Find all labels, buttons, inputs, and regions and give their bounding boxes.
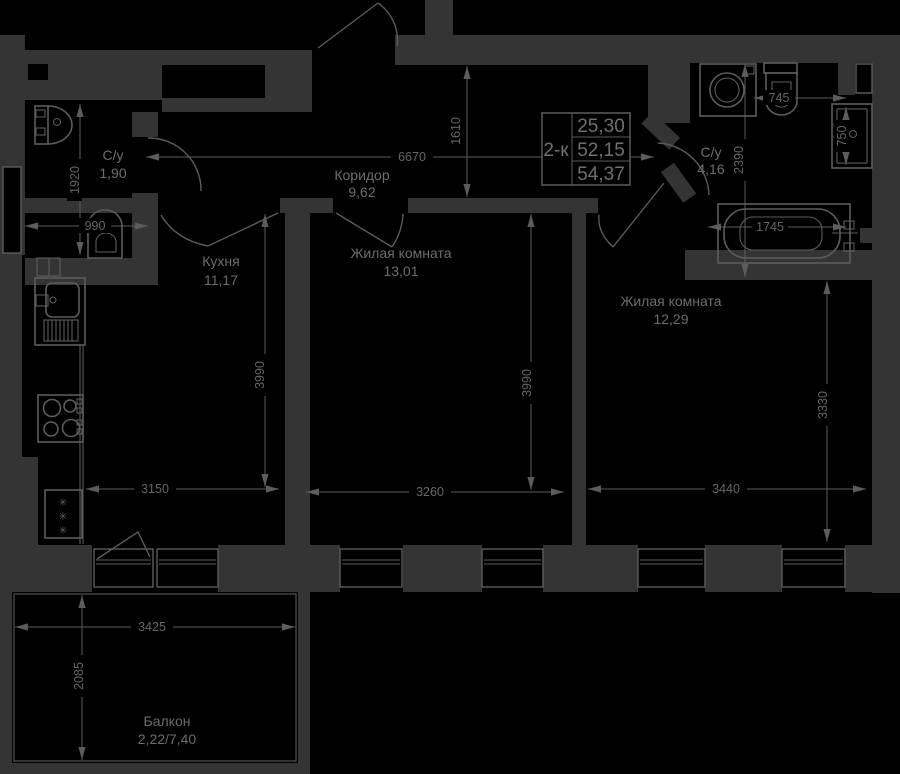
room-label-bath2: С/у 4,16: [697, 144, 724, 177]
area-value-2: 52,15: [577, 140, 625, 161]
svg-text:3425: 3425: [138, 620, 166, 634]
dim-balcony-width: 3425: [131, 619, 173, 634]
dim-room2-depth: 3330: [815, 384, 830, 426]
room-label-corridor: Коридор 9,62: [334, 167, 390, 200]
bath1-door-swing: [148, 138, 201, 191]
svg-text:Жилая комната: Жилая комната: [620, 293, 721, 309]
svg-text:Коридор: Коридор: [334, 167, 390, 183]
room1-door-swing: [336, 213, 403, 247]
window-room2-a: [638, 549, 705, 587]
sink-icon: [35, 106, 72, 144]
svg-text:3330: 3330: [816, 391, 830, 419]
dim-bath1-toilet: 990: [79, 218, 111, 233]
snowflake-icon: ✳: [58, 510, 67, 523]
svg-text:3440: 3440: [712, 482, 740, 496]
dim-corridor-width: 6670: [391, 149, 433, 164]
duct-shaft: [856, 64, 872, 93]
svg-text:2,22/7,40: 2,22/7,40: [138, 731, 197, 747]
room-label-living2: Жилая комната 12,29: [620, 293, 721, 327]
dim-bath1-depth: 1920: [67, 159, 82, 201]
svg-text:3990: 3990: [520, 369, 534, 397]
room-label-living1: Жилая комната 13,01: [350, 245, 451, 279]
room-label-balcony: Балкон 2,22/7,40: [138, 713, 197, 747]
svg-text:12,29: 12,29: [653, 311, 688, 327]
window-room2-b: [782, 549, 845, 587]
floor-plan-canvas: ✳ ✳ ✳ 2-к 25,30 52,15 54,37: [0, 0, 900, 774]
window-kitchen: [157, 549, 218, 587]
room-label-kitchen: Кухня 11,17: [202, 253, 239, 288]
toilet-icon: [88, 210, 122, 258]
dim-kitchen-depth: 3990: [252, 354, 267, 396]
room-labels: С/у 1,90 Коридор 9,62 С/у 4,16 Кухня 11,…: [99, 144, 724, 747]
area-value-3: 54,37: [577, 164, 625, 185]
dim-kitchen-width: 3150: [134, 481, 176, 496]
stove-icon: [38, 395, 83, 442]
svg-text:11,17: 11,17: [204, 272, 238, 288]
svg-text:2085: 2085: [72, 662, 86, 690]
dim-room1-depth: 3990: [519, 362, 534, 404]
dim-bathtub-length: 1745: [752, 219, 788, 234]
snowflake-icon: ✳: [58, 496, 67, 509]
duct-shaft-left: [3, 167, 21, 253]
svg-text:9,62: 9,62: [348, 184, 375, 200]
snowflake-icon: ✳: [58, 524, 67, 537]
dim-bath2-sink: 750: [834, 120, 849, 152]
window-room1-a: [340, 549, 402, 587]
entry-door-swing: [318, 3, 397, 48]
toilet2-icon: [764, 63, 797, 115]
dim-room1-width: 3260: [409, 484, 451, 499]
svg-text:Жилая комната: Жилая комната: [350, 245, 451, 261]
svg-text:3990: 3990: [253, 361, 267, 389]
kitchen-door-swing: [161, 213, 278, 246]
kitchen-sink-icon: [35, 278, 85, 345]
svg-text:1920: 1920: [68, 166, 82, 194]
svg-text:13,01: 13,01: [383, 263, 418, 279]
apartment-type-label: 2-к: [543, 140, 569, 161]
svg-text:1610: 1610: [449, 117, 463, 145]
svg-text:С/у: С/у: [701, 144, 722, 160]
svg-text:Балкон: Балкон: [144, 713, 191, 729]
svg-text:1,90: 1,90: [99, 165, 126, 181]
title-block: 2-к 25,30 52,15 54,37: [542, 113, 630, 185]
area-value-1: 25,30: [577, 116, 625, 137]
svg-text:С/у: С/у: [103, 147, 124, 163]
svg-text:4,16: 4,16: [697, 161, 724, 177]
room-label-bath1: С/у 1,90: [99, 147, 126, 181]
room2-door-swing: [599, 183, 664, 247]
svg-text:3260: 3260: [416, 485, 444, 499]
svg-text:990: 990: [85, 219, 106, 233]
dim-bath2-depth: 2390: [731, 139, 746, 181]
fridge-icon: ✳ ✳ ✳: [45, 490, 82, 538]
window-room1-b: [482, 549, 543, 587]
dim-hall-depth: 1610: [448, 110, 463, 152]
svg-text:750: 750: [835, 126, 849, 147]
dim-room2-width: 3440: [705, 481, 747, 496]
dim-bath2-toilet: 745: [763, 90, 795, 105]
svg-text:3150: 3150: [141, 482, 169, 496]
dim-balcony-depth: 2085: [71, 655, 86, 697]
svg-text:Кухня: Кухня: [202, 253, 239, 269]
svg-text:6670: 6670: [398, 150, 426, 164]
doors: [97, 3, 709, 559]
floor-plan: ✳ ✳ ✳ 2-к 25,30 52,15 54,37: [0, 0, 900, 774]
svg-text:745: 745: [769, 91, 790, 105]
washing-machine-icon: [700, 64, 756, 116]
dimension-labels: 6670 1610 1920 990 2390 745 1745 750: [67, 90, 849, 697]
svg-text:2390: 2390: [732, 146, 746, 174]
svg-text:1745: 1745: [756, 220, 784, 234]
